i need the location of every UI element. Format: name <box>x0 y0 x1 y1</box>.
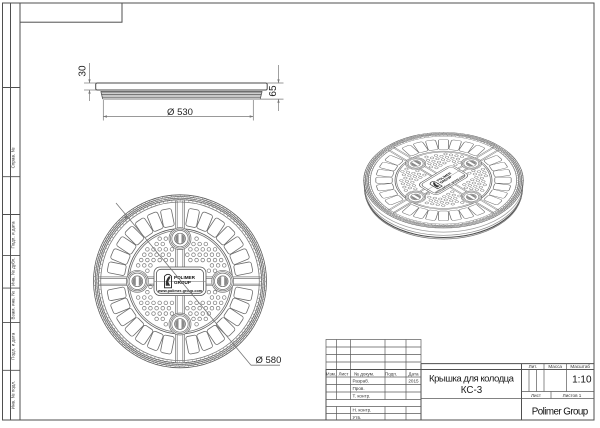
svg-text:Лит.: Лит. <box>529 364 538 369</box>
svg-text:Ø 580: Ø 580 <box>256 355 282 366</box>
svg-text:1:10: 1:10 <box>572 374 592 385</box>
svg-text:Взам. инв. №: Взам. инв. № <box>10 291 15 320</box>
svg-text:2015: 2015 <box>408 379 419 384</box>
svg-text:Ø 530: Ø 530 <box>167 107 193 118</box>
svg-text:Инв. № дубл.: Инв. № дубл. <box>10 257 15 285</box>
svg-text:Polimer Group: Polimer Group <box>532 406 589 417</box>
svg-text:Разраб.: Разраб. <box>353 379 370 384</box>
svg-text:Листов 1: Листов 1 <box>563 393 582 398</box>
svg-text:Крышка для колодца: Крышка для колодца <box>429 373 515 384</box>
svg-text:Утв.: Утв. <box>353 415 362 420</box>
svg-text:Подп. и дата: Подп. и дата <box>10 332 15 360</box>
svg-text:КС-3: КС-3 <box>461 385 483 396</box>
svg-text:Дата: Дата <box>408 371 419 376</box>
svg-text:Масса: Масса <box>548 364 562 369</box>
svg-text:Масштаб: Масштаб <box>570 364 590 369</box>
svg-text:Н. контр.: Н. контр. <box>353 408 372 413</box>
svg-text:Лист: Лист <box>339 371 350 376</box>
svg-text:30: 30 <box>78 65 89 77</box>
svg-text:Т. контр.: Т. контр. <box>353 394 371 399</box>
svg-text:Подп.: Подп. <box>385 371 397 376</box>
svg-text:№ докум.: № докум. <box>354 371 374 376</box>
svg-text:Инв. № подл.: Инв. № подл. <box>10 381 15 410</box>
svg-text:Справ. №: Справ. № <box>10 148 15 169</box>
svg-text:Пров.: Пров. <box>353 386 365 391</box>
svg-text:65: 65 <box>268 85 279 97</box>
svg-text:Изм.: Изм. <box>326 371 336 376</box>
svg-text:Подп. и дата: Подп. и дата <box>10 221 15 249</box>
svg-text:Лист: Лист <box>531 393 542 398</box>
